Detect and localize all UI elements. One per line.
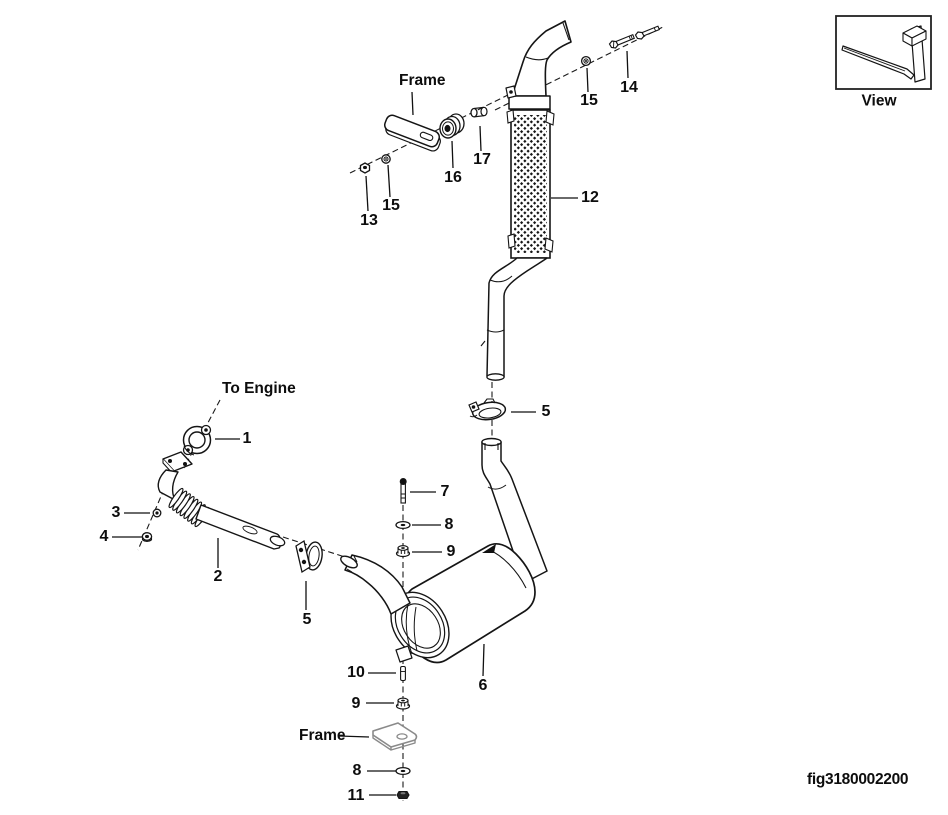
callout-15-frame: 15 [382,198,400,214]
bolt-14a [610,35,635,48]
callout-13: 13 [360,213,378,229]
isolator-16 [440,114,464,138]
assembly-center-lines [138,27,663,801]
nut-3 [153,509,161,517]
callout-7: 7 [441,484,450,500]
clamp-lower [296,541,324,572]
upper-pipe-section [481,258,547,380]
clamp-upper [469,399,507,422]
view-label: View [861,93,896,109]
callout-10: 10 [347,665,365,681]
bolt-14b [636,26,660,39]
callout-9-bottom: 9 [352,696,361,712]
nut-13 [361,163,370,173]
to-engine-label: To Engine [222,381,296,397]
washer-8-bottom [396,768,410,775]
view-orientation-box [836,16,931,89]
flex-pipe [158,452,286,549]
figure-id: fig3180002200 [807,772,908,788]
callout-8-mid: 8 [445,517,454,533]
callout-14: 14 [620,80,638,96]
callout-6: 6 [479,678,488,694]
callout-3: 3 [112,505,121,521]
nut-4 [142,533,151,542]
callout-17: 17 [473,152,491,168]
callout-1: 1 [243,431,252,447]
frame-bracket-upper [382,113,444,152]
muffler-inlet-pipe [339,554,410,614]
frame-lower-label: Frame [299,728,346,744]
callout-11: 11 [348,788,365,804]
callout-4: 4 [100,529,109,545]
nut-9-mid [397,546,410,557]
nut-11 [397,792,409,799]
flange-gasket [184,426,211,456]
callout-5-upper: 5 [542,404,551,420]
callout-9-mid: 9 [447,544,456,560]
frame-plate-lower [373,723,417,750]
callout-12: 12 [581,190,599,206]
diagram-canvas [0,0,948,815]
nut-15-top [582,57,591,66]
stud-10 [401,667,406,681]
callout-15-top: 15 [580,93,598,109]
nut-15-frame [382,155,390,163]
callout-5-lower: 5 [303,612,312,628]
washer-8-mid [396,522,410,529]
nut-9-bottom [397,698,410,709]
bolt-7 [400,479,406,504]
frame-upper-label: Frame [399,73,446,89]
exhaust-stack-pipe [506,21,571,109]
exhaust-guard-mesh [507,110,554,258]
parts-diagram-page: To Engine Frame Frame View fig3180002200… [0,0,948,815]
callout-16: 16 [444,170,462,186]
callout-8-bottom: 8 [353,763,362,779]
callout-2: 2 [214,569,223,585]
